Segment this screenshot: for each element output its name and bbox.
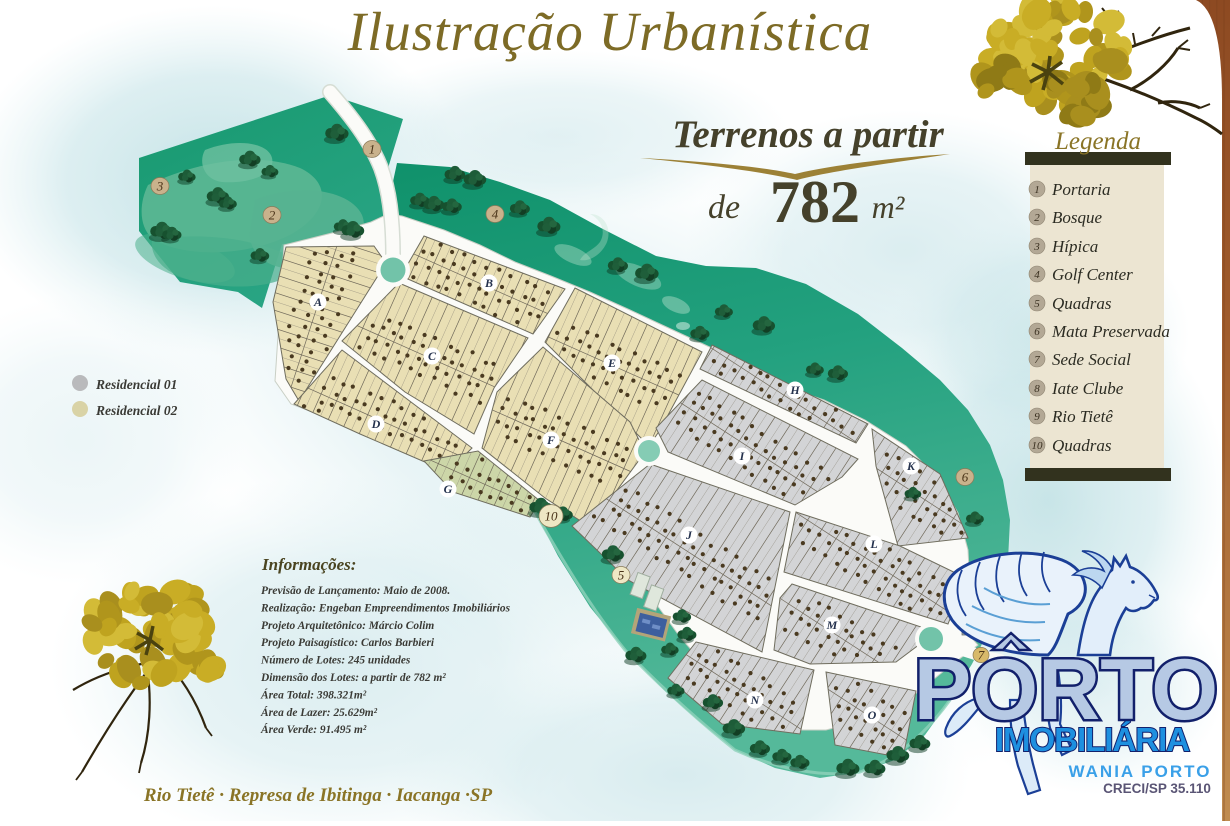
svg-text:1: 1 — [1034, 184, 1040, 196]
svg-text:7: 7 — [1034, 354, 1040, 366]
svg-text:Residencial 02: Residencial 02 — [95, 403, 178, 418]
svg-text:Projeto Paisagístico: Carlos B: Projeto Paisagístico: Carlos Barbieri — [261, 637, 435, 649]
svg-text:5: 5 — [1034, 298, 1040, 310]
svg-text:Portaria: Portaria — [1051, 180, 1111, 199]
svg-text:Iate Clube: Iate Clube — [1051, 379, 1124, 398]
svg-text:m²: m² — [872, 189, 906, 225]
svg-text:G: G — [444, 482, 453, 496]
svg-text:6: 6 — [962, 470, 969, 485]
svg-text:3: 3 — [1033, 241, 1040, 253]
svg-text:Legenda: Legenda — [1054, 128, 1141, 155]
svg-text:Quadras: Quadras — [1052, 294, 1112, 313]
svg-text:Ilustração Urbanística: Ilustração Urbanística — [347, 1, 873, 62]
svg-text:H: H — [789, 383, 800, 397]
svg-text:K: K — [906, 459, 916, 473]
svg-text:Área de Lazer: 25.629m²: Área de Lazer: 25.629m² — [260, 707, 378, 719]
svg-text:782: 782 — [770, 169, 860, 235]
svg-text:Quadras: Quadras — [1052, 436, 1112, 455]
svg-text:2: 2 — [269, 208, 276, 223]
svg-text:Número de Lotes: 245 unidades: Número de Lotes: 245 unidades — [260, 655, 411, 667]
svg-text:N: N — [750, 693, 761, 707]
svg-text:Golf Center: Golf Center — [1052, 265, 1133, 284]
svg-text:A: A — [313, 295, 322, 309]
svg-text:6: 6 — [1034, 326, 1040, 338]
svg-text:WANIA PORTO: WANIA PORTO — [1069, 762, 1212, 781]
svg-text:1: 1 — [369, 142, 376, 157]
svg-text:Rio Tietê: Rio Tietê — [1051, 407, 1113, 426]
svg-text:4: 4 — [492, 207, 499, 222]
svg-text:B: B — [484, 276, 493, 290]
svg-text:10: 10 — [545, 509, 559, 524]
svg-text:E: E — [607, 356, 616, 370]
svg-text:10: 10 — [1032, 440, 1044, 452]
svg-text:L: L — [869, 537, 877, 551]
svg-text:D: D — [371, 417, 381, 431]
svg-text:O: O — [868, 708, 877, 722]
svg-text:CRECI/SP 35.110: CRECI/SP 35.110 — [1103, 781, 1211, 796]
svg-text:Área Verde: 91.495 m²: Área Verde: 91.495 m² — [260, 724, 367, 736]
svg-text:Rio Tietê · Represa de Ibiting: Rio Tietê · Represa de Ibitinga · Iacang… — [143, 785, 493, 806]
svg-text:C: C — [428, 349, 437, 363]
svg-text:Terrenos a partir: Terrenos a partir — [672, 113, 944, 156]
svg-text:Projeto Arquitetônico: Márcio: Projeto Arquitetônico: Márcio Colim — [261, 620, 434, 632]
svg-text:J: J — [685, 528, 693, 542]
svg-text:5: 5 — [618, 568, 625, 583]
svg-text:Área Total: 398.321m²: Área Total: 398.321m² — [260, 689, 367, 701]
svg-text:9: 9 — [1034, 411, 1040, 423]
svg-text:Residencial 01: Residencial 01 — [95, 377, 177, 392]
svg-text:Hípica: Hípica — [1051, 237, 1098, 256]
svg-text:Sede Social: Sede Social — [1052, 350, 1131, 369]
svg-text:Realização: Engeban Empreendim: Realização: Engeban Empreendimentos Imob… — [260, 602, 511, 614]
svg-text:F: F — [546, 433, 555, 447]
svg-text:2: 2 — [1034, 212, 1040, 224]
svg-text:Informações:: Informações: — [261, 555, 356, 574]
svg-text:de: de — [708, 189, 740, 226]
svg-text:4: 4 — [1034, 269, 1040, 281]
svg-text:8: 8 — [1034, 383, 1040, 395]
svg-text:Bosque: Bosque — [1052, 208, 1103, 227]
svg-text:3: 3 — [156, 179, 164, 194]
svg-text:Mata Preservada: Mata Preservada — [1051, 322, 1170, 341]
svg-text:M: M — [826, 618, 838, 632]
svg-text:Previsão de Lançamento: Maio d: Previsão de Lançamento: Maio de 2008. — [261, 585, 450, 597]
svg-text:IMOBILIÁRIA: IMOBILIÁRIA — [995, 721, 1189, 758]
svg-text:Dimensão dos Lotes: a partir d: Dimensão dos Lotes: a partir de 782 m² — [260, 672, 446, 684]
